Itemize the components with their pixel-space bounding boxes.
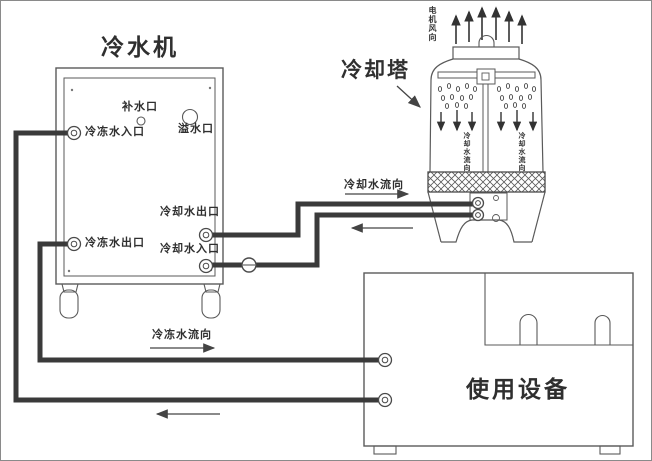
cooling-outlet-label: 冷却水出口: [160, 207, 220, 218]
overflow-port-label: 溢水口: [178, 124, 214, 135]
tower-top-rim: [453, 47, 519, 59]
cooling-tower: [397, 8, 545, 242]
tower-flow-label-left: 冷却水流向: [461, 132, 471, 172]
chilled-flow-label: 冷冻水流向: [152, 330, 212, 341]
tower-flow-label-right: 冷却水流向: [516, 132, 526, 172]
chilled-inlet-port: [68, 127, 81, 140]
tower-inlet-port: [473, 198, 484, 209]
cooling-flow-label: 冷却水流向: [344, 180, 404, 191]
motor-wind-label: 电机风向: [427, 6, 438, 42]
equipment-outlet-port: [379, 394, 392, 407]
chilled-outlet-label: 冷冻水出口: [85, 238, 145, 249]
equipment-inlet-port: [379, 354, 392, 367]
caster-right: [202, 284, 220, 318]
equipment-foot-right: [600, 446, 620, 454]
caster-left: [60, 284, 78, 318]
chilled-outlet-port: [68, 238, 81, 251]
rivet: [71, 89, 73, 91]
cooling-tower-title: 冷却塔: [341, 60, 410, 81]
tower-label-pointer: [397, 86, 420, 107]
pipe-cooling-supply: [206, 204, 474, 235]
tower-fill-mesh: [428, 172, 545, 192]
makeup-port-label: 补水口: [122, 102, 158, 113]
rivet: [68, 270, 70, 272]
cooling-inlet-label: 冷却水入口: [160, 244, 220, 255]
tower-outlet-port: [473, 210, 484, 221]
rivet: [209, 87, 211, 89]
airflow-up-arrows: [456, 8, 522, 44]
piping-diagram: 冷水机 冷却塔 使用设备 补水口 溢水口 冷冻水入口 冷冻水出口 冷却水出口 冷…: [0, 0, 652, 461]
cooling-inlet-port: [200, 260, 213, 273]
water-down-arrows: [441, 110, 533, 130]
equipment-title: 使用设备: [466, 378, 570, 401]
chiller-title: 冷水机: [101, 36, 179, 59]
chilled-inlet-label: 冷冻水入口: [85, 127, 145, 138]
equipment-box: [364, 273, 633, 454]
tower-distributor-hub: [477, 69, 495, 84]
cooling-outlet-port: [200, 229, 213, 242]
tower-motor-dome: [479, 36, 494, 48]
equipment-foot-left: [374, 446, 396, 454]
tower-droplets: [438, 84, 535, 109]
